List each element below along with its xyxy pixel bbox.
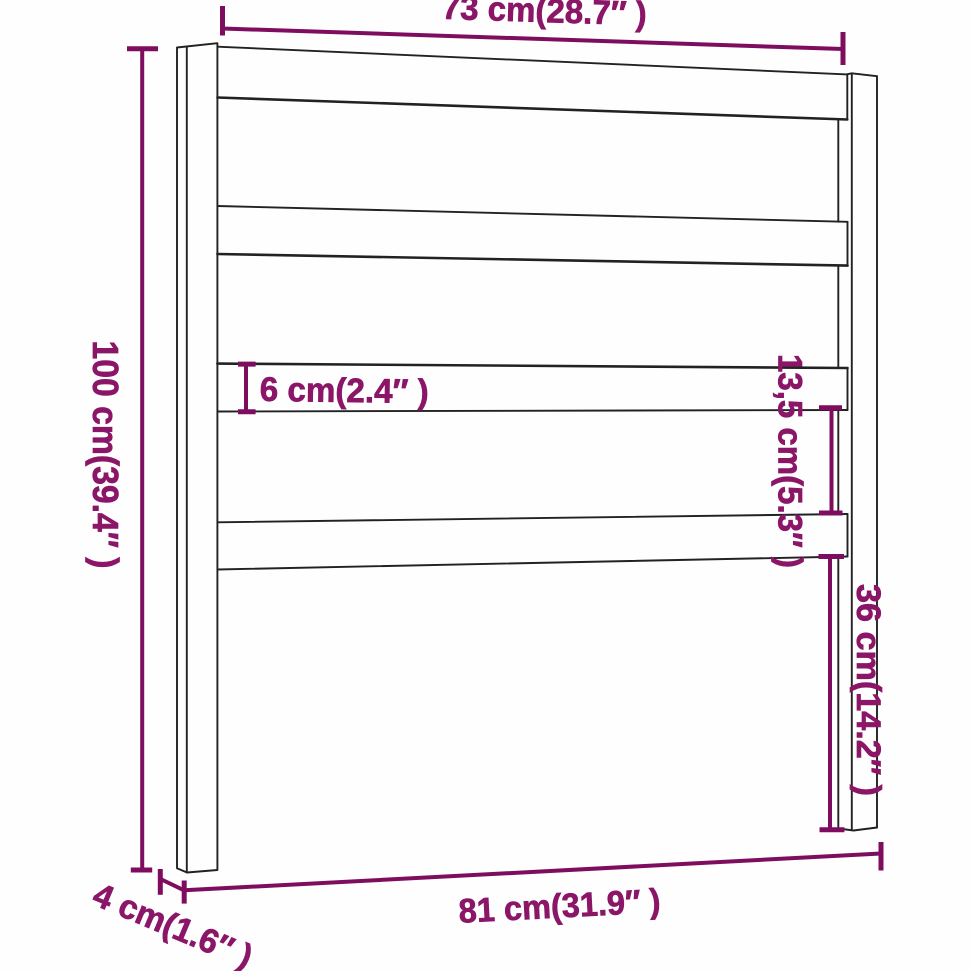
- svg-text:13,5 cm(5.3″ ): 13,5 cm(5.3″ ): [771, 354, 809, 568]
- svg-text:36 cm(14.2″ ): 36 cm(14.2″ ): [849, 584, 887, 796]
- svg-text:100 cm(39.4″ ): 100 cm(39.4″ ): [85, 341, 126, 569]
- svg-text:6 cm(2.4″ ): 6 cm(2.4″ ): [259, 371, 429, 411]
